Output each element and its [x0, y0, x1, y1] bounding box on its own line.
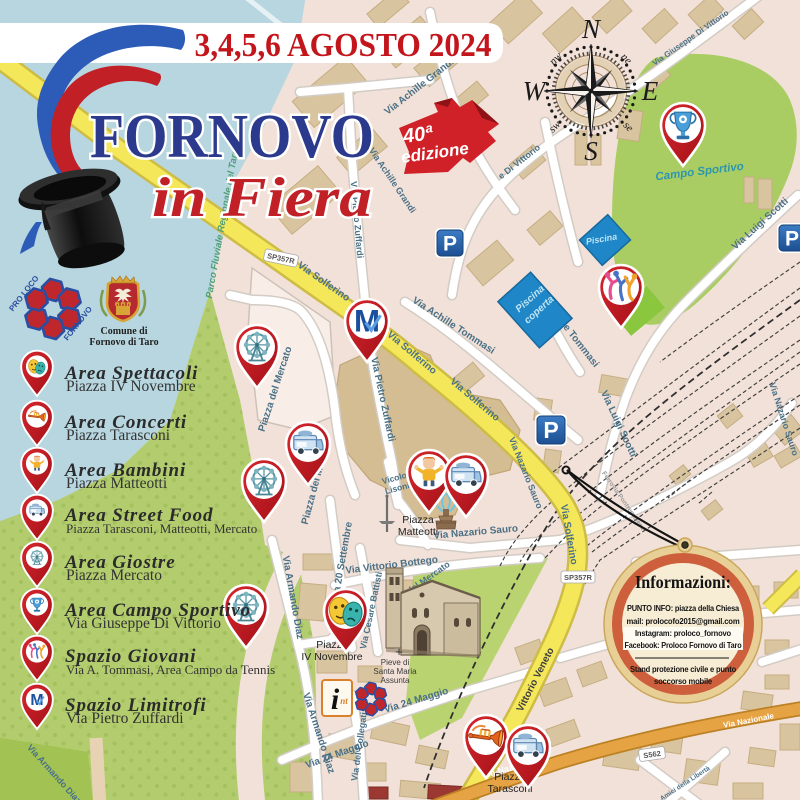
svg-text:P: P — [443, 233, 457, 256]
svg-text:Piazza Matteotti: Piazza Matteotti — [66, 475, 168, 492]
svg-text:+: + — [395, 644, 403, 659]
svg-text:N: N — [581, 14, 602, 44]
svg-text:S: S — [584, 136, 598, 166]
svg-text:Via Giuseppe Di Vittorio: Via Giuseppe Di Vittorio — [66, 615, 221, 632]
svg-text:nt: nt — [340, 696, 348, 706]
svg-text:in Fiera: in Fiera — [152, 167, 372, 229]
svg-text:SP357R: SP357R — [564, 573, 593, 582]
svg-text:Pieve di: Pieve di — [381, 658, 410, 667]
svg-text:i: i — [331, 683, 340, 716]
svg-text:P: P — [543, 417, 558, 443]
svg-text:Via Pietro Zuffardi: Via Pietro Zuffardi — [66, 710, 184, 727]
svg-text:Instagram: proloco_fornovo: Instagram: proloco_fornovo — [635, 628, 731, 638]
svg-text:P: P — [785, 228, 799, 251]
svg-text:W: W — [523, 76, 548, 106]
svg-text:Piazza IV Novembre: Piazza IV Novembre — [66, 378, 196, 395]
svg-text:Via A. Tommasi, Area Campo da: Via A. Tommasi, Area Campo da Tennis — [66, 662, 275, 677]
svg-text:Comune di: Comune di — [101, 326, 148, 337]
svg-text:Informazioni:: Informazioni: — [635, 572, 731, 592]
svg-text:Assunta: Assunta — [381, 676, 410, 685]
svg-text:Piazza Tarasconi, Matteotti, M: Piazza Tarasconi, Matteotti, Mercato — [66, 521, 257, 536]
svg-text:Facebook: Proloco Fornovo di T: Facebook: Proloco Fornovo di Taro — [625, 640, 742, 650]
svg-text:Piazza: Piazza — [402, 514, 434, 526]
svg-text:3,4,5,6 AGOSTO 2024: 3,4,5,6 AGOSTO 2024 — [195, 27, 492, 64]
svg-text:Matteotti: Matteotti — [398, 526, 438, 538]
svg-text:mail: prolocofo2015@gmail.com: mail: prolocofo2015@gmail.com — [627, 616, 740, 626]
svg-text:Stand protezione civile e punt: Stand protezione civile e punto — [630, 664, 736, 674]
svg-text:Fornovo di Taro: Fornovo di Taro — [89, 337, 158, 348]
svg-text:Piazza Tarasconi: Piazza Tarasconi — [66, 427, 171, 444]
svg-text:IV Novembre: IV Novembre — [301, 651, 362, 663]
svg-text:Piazza Mercato: Piazza Mercato — [66, 567, 162, 584]
svg-text:PUNTO INFO: piazza della Chies: PUNTO INFO: piazza della Chiesa — [627, 603, 739, 613]
svg-text:Santa Maria: Santa Maria — [373, 667, 417, 676]
svg-text:E: E — [641, 76, 659, 106]
svg-text:soccorso mobile: soccorso mobile — [654, 676, 712, 686]
svg-text:FORNOVO: FORNOVO — [90, 103, 374, 171]
